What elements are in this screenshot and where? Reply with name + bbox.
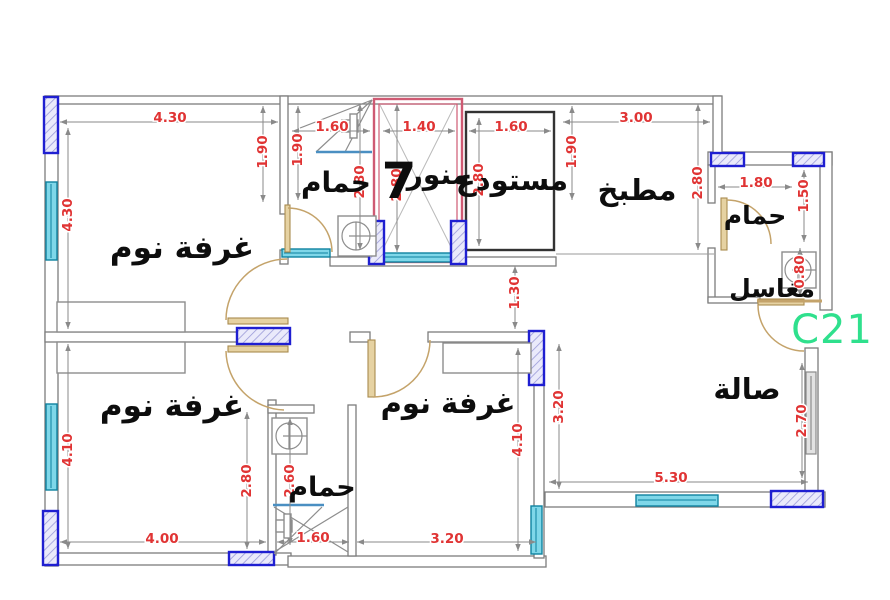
dimension-hall-left-height: 3.20 (551, 390, 567, 423)
room-label-bedroom-bottom-left: غرفة نوم (100, 388, 244, 424)
room-label-bedroom-bottom-middle: غرفة نوم (381, 386, 516, 420)
dimension-bedroom-bottom-mid-height: 4.10 (510, 423, 526, 456)
wardrobe (57, 302, 185, 332)
room-label-bedroom-top-left: غرفة نوم (110, 230, 254, 266)
room-label-bathroom-top-right: حمام (724, 201, 787, 230)
door (285, 205, 332, 252)
window (46, 182, 57, 260)
dimension-bedroom-bottom-left-height: 4.10 (60, 433, 76, 466)
dimension-bathroom-right-width: 1.80 (739, 175, 772, 191)
column (711, 153, 744, 166)
dimension-bathroom-bottom-offset: 2.80 (239, 464, 255, 497)
column (229, 552, 274, 565)
dimension-lightwell-width: 1.40 (402, 119, 435, 135)
room-label-hall: صالة (713, 372, 780, 406)
watermark: C21 (791, 307, 873, 353)
column (793, 153, 824, 166)
wardrobe (57, 342, 185, 373)
dimension-kitchen-width: 3.00 (619, 110, 652, 126)
toilet-icon (338, 216, 376, 256)
dimension-hall-right-height: 2.70 (794, 404, 810, 437)
dimension-bathroom-right-height: 1.50 (796, 179, 812, 212)
column (451, 221, 466, 264)
column (237, 328, 290, 344)
dimension-bedroom-bottom-left-width: 4.00 (145, 531, 178, 547)
room-label-bathroom-bottom: حمام (288, 472, 356, 503)
floor-plan: 4.301.601.401.603.001.805.304.001.603.20… (0, 0, 890, 600)
dimension-storage-width: 1.60 (494, 119, 527, 135)
room-label-storage: مستودع (456, 163, 568, 197)
window (531, 506, 542, 554)
dimension-bathroom-top-depth: 1.90 (290, 133, 306, 166)
dimension-bedroom-top-left-width: 4.30 (153, 110, 186, 126)
window (46, 404, 57, 490)
dimension-bathroom-top-width: 1.60 (315, 119, 348, 135)
window (636, 495, 718, 506)
room-label-kitchen: مطبخ (598, 173, 677, 207)
dimension-bathroom-bottom-width: 1.60 (296, 530, 329, 546)
room-label-sinks: مغاسل (729, 274, 815, 303)
dimension-corridor-width: 1.30 (507, 276, 523, 309)
dimension-bedroom-door-offset: 1.90 (255, 135, 271, 168)
room-label-bathroom-top: حمام (301, 166, 371, 199)
column (43, 511, 58, 565)
dimension-hall-width: 5.30 (654, 470, 687, 486)
column (771, 491, 823, 507)
dimension-kitchen-height: 2.80 (690, 166, 706, 199)
window (382, 253, 454, 262)
floor-plan-canvas: 4.301.601.401.603.001.805.304.001.603.20… (0, 0, 890, 600)
dimension-bedroom-top-left-height: 4.30 (60, 198, 76, 231)
door (226, 259, 288, 324)
dimension-bedroom-bottom-mid-width: 3.20 (430, 531, 463, 547)
column (44, 97, 58, 153)
